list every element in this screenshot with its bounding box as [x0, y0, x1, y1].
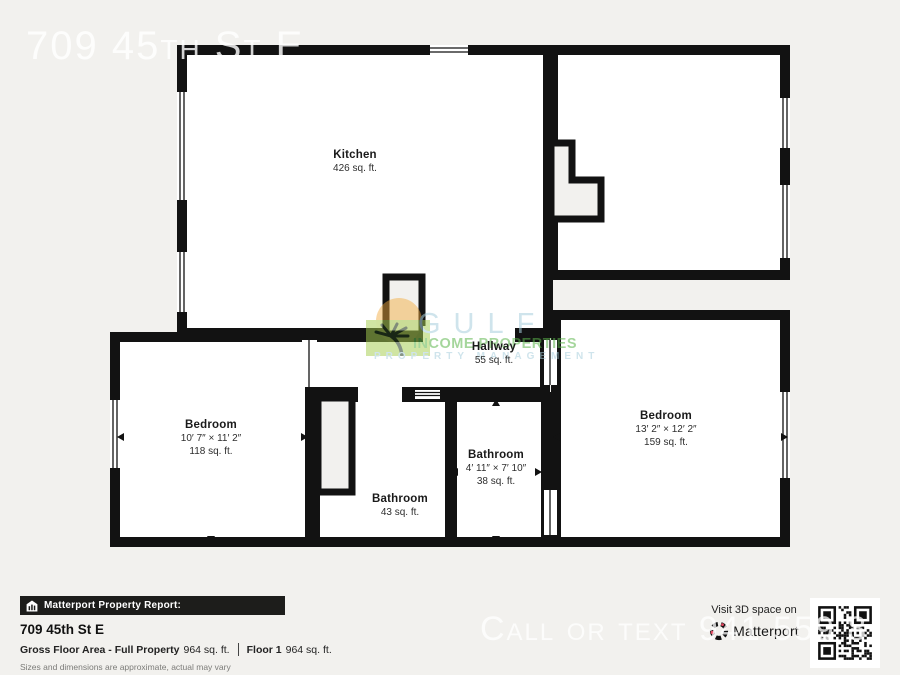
- room-label-hallway: Hallway 55 sq. ft.: [472, 341, 516, 366]
- hallway-notch: [386, 277, 422, 334]
- room-dims: 4′ 11″ × 7′ 10″: [466, 463, 526, 474]
- qr-code-image: [813, 601, 877, 665]
- visit-3d-block: Visit 3D space on Matterport: [704, 604, 804, 641]
- room-name: Bedroom: [635, 410, 696, 422]
- room-area: 118 sq. ft.: [181, 446, 241, 457]
- room-area: 43 sq. ft.: [372, 507, 428, 518]
- room-name: Bedroom: [181, 419, 241, 431]
- gross-area-label: Gross Floor Area - Full Property: [20, 644, 179, 656]
- report-title-bar: Matterport Property Report:: [20, 596, 285, 615]
- room-name: Hallway: [472, 341, 516, 353]
- room-area: 159 sq. ft.: [635, 437, 696, 448]
- room-name: Kitchen: [333, 149, 377, 161]
- room-dims: 13′ 2″ × 12′ 2″: [635, 424, 696, 435]
- room-label-kitchen: Kitchen 426 sq. ft.: [333, 149, 377, 174]
- floor-value: 964 sq. ft.: [286, 644, 332, 656]
- property-report-block: Matterport Property Report: 709 45th St …: [20, 596, 350, 672]
- matterport-logo-icon: [709, 621, 729, 641]
- room-name: Bathroom: [372, 493, 428, 505]
- room-area: 55 sq. ft.: [472, 355, 516, 366]
- room-label-bathroom-left: Bathroom 43 sq. ft.: [372, 493, 428, 518]
- gross-area-value: 964 sq. ft.: [183, 644, 229, 656]
- report-area-line: Gross Floor Area - Full Property 964 sq.…: [20, 643, 350, 656]
- room-label-bedroom-right: Bedroom 13′ 2″ × 12′ 2″ 159 sq. ft.: [635, 410, 696, 448]
- topright-room-outline: [553, 50, 785, 275]
- matterport-wordmark: Matterport: [733, 623, 799, 639]
- qr-code: [810, 598, 880, 668]
- matterport-brand-row: Matterport: [704, 621, 804, 641]
- room-dims: 10′ 7″ × 11′ 2″: [181, 433, 241, 444]
- report-address: 709 45th St E: [20, 622, 350, 637]
- floorplan-drawing: [0, 0, 900, 675]
- report-bar-title: Matterport Property Report:: [44, 600, 181, 611]
- bathroom-left-door: [358, 386, 402, 402]
- room-area: 38 sq. ft.: [466, 476, 526, 487]
- floorplan-page: GULF INCOME PROPERTIES PROPERTY MANAGEME…: [0, 0, 900, 675]
- report-disclaimer: Sizes and dimensions are approximate, ac…: [20, 662, 350, 672]
- room-label-bathroom-mid: Bathroom 4′ 11″ × 7′ 10″ 38 sq. ft.: [466, 449, 526, 487]
- visit-3d-text: Visit 3D space on: [704, 604, 804, 616]
- room-name: Bathroom: [466, 449, 526, 461]
- house-chart-icon: [26, 600, 38, 612]
- room-label-bedroom-left: Bedroom 10′ 7″ × 11′ 2″ 118 sq. ft.: [181, 419, 241, 457]
- divider: [238, 643, 239, 656]
- closet-notch: [318, 398, 352, 492]
- room-area: 426 sq. ft.: [333, 163, 377, 174]
- floor-label: Floor 1: [247, 644, 282, 656]
- kitchen-room-outline: [182, 50, 548, 333]
